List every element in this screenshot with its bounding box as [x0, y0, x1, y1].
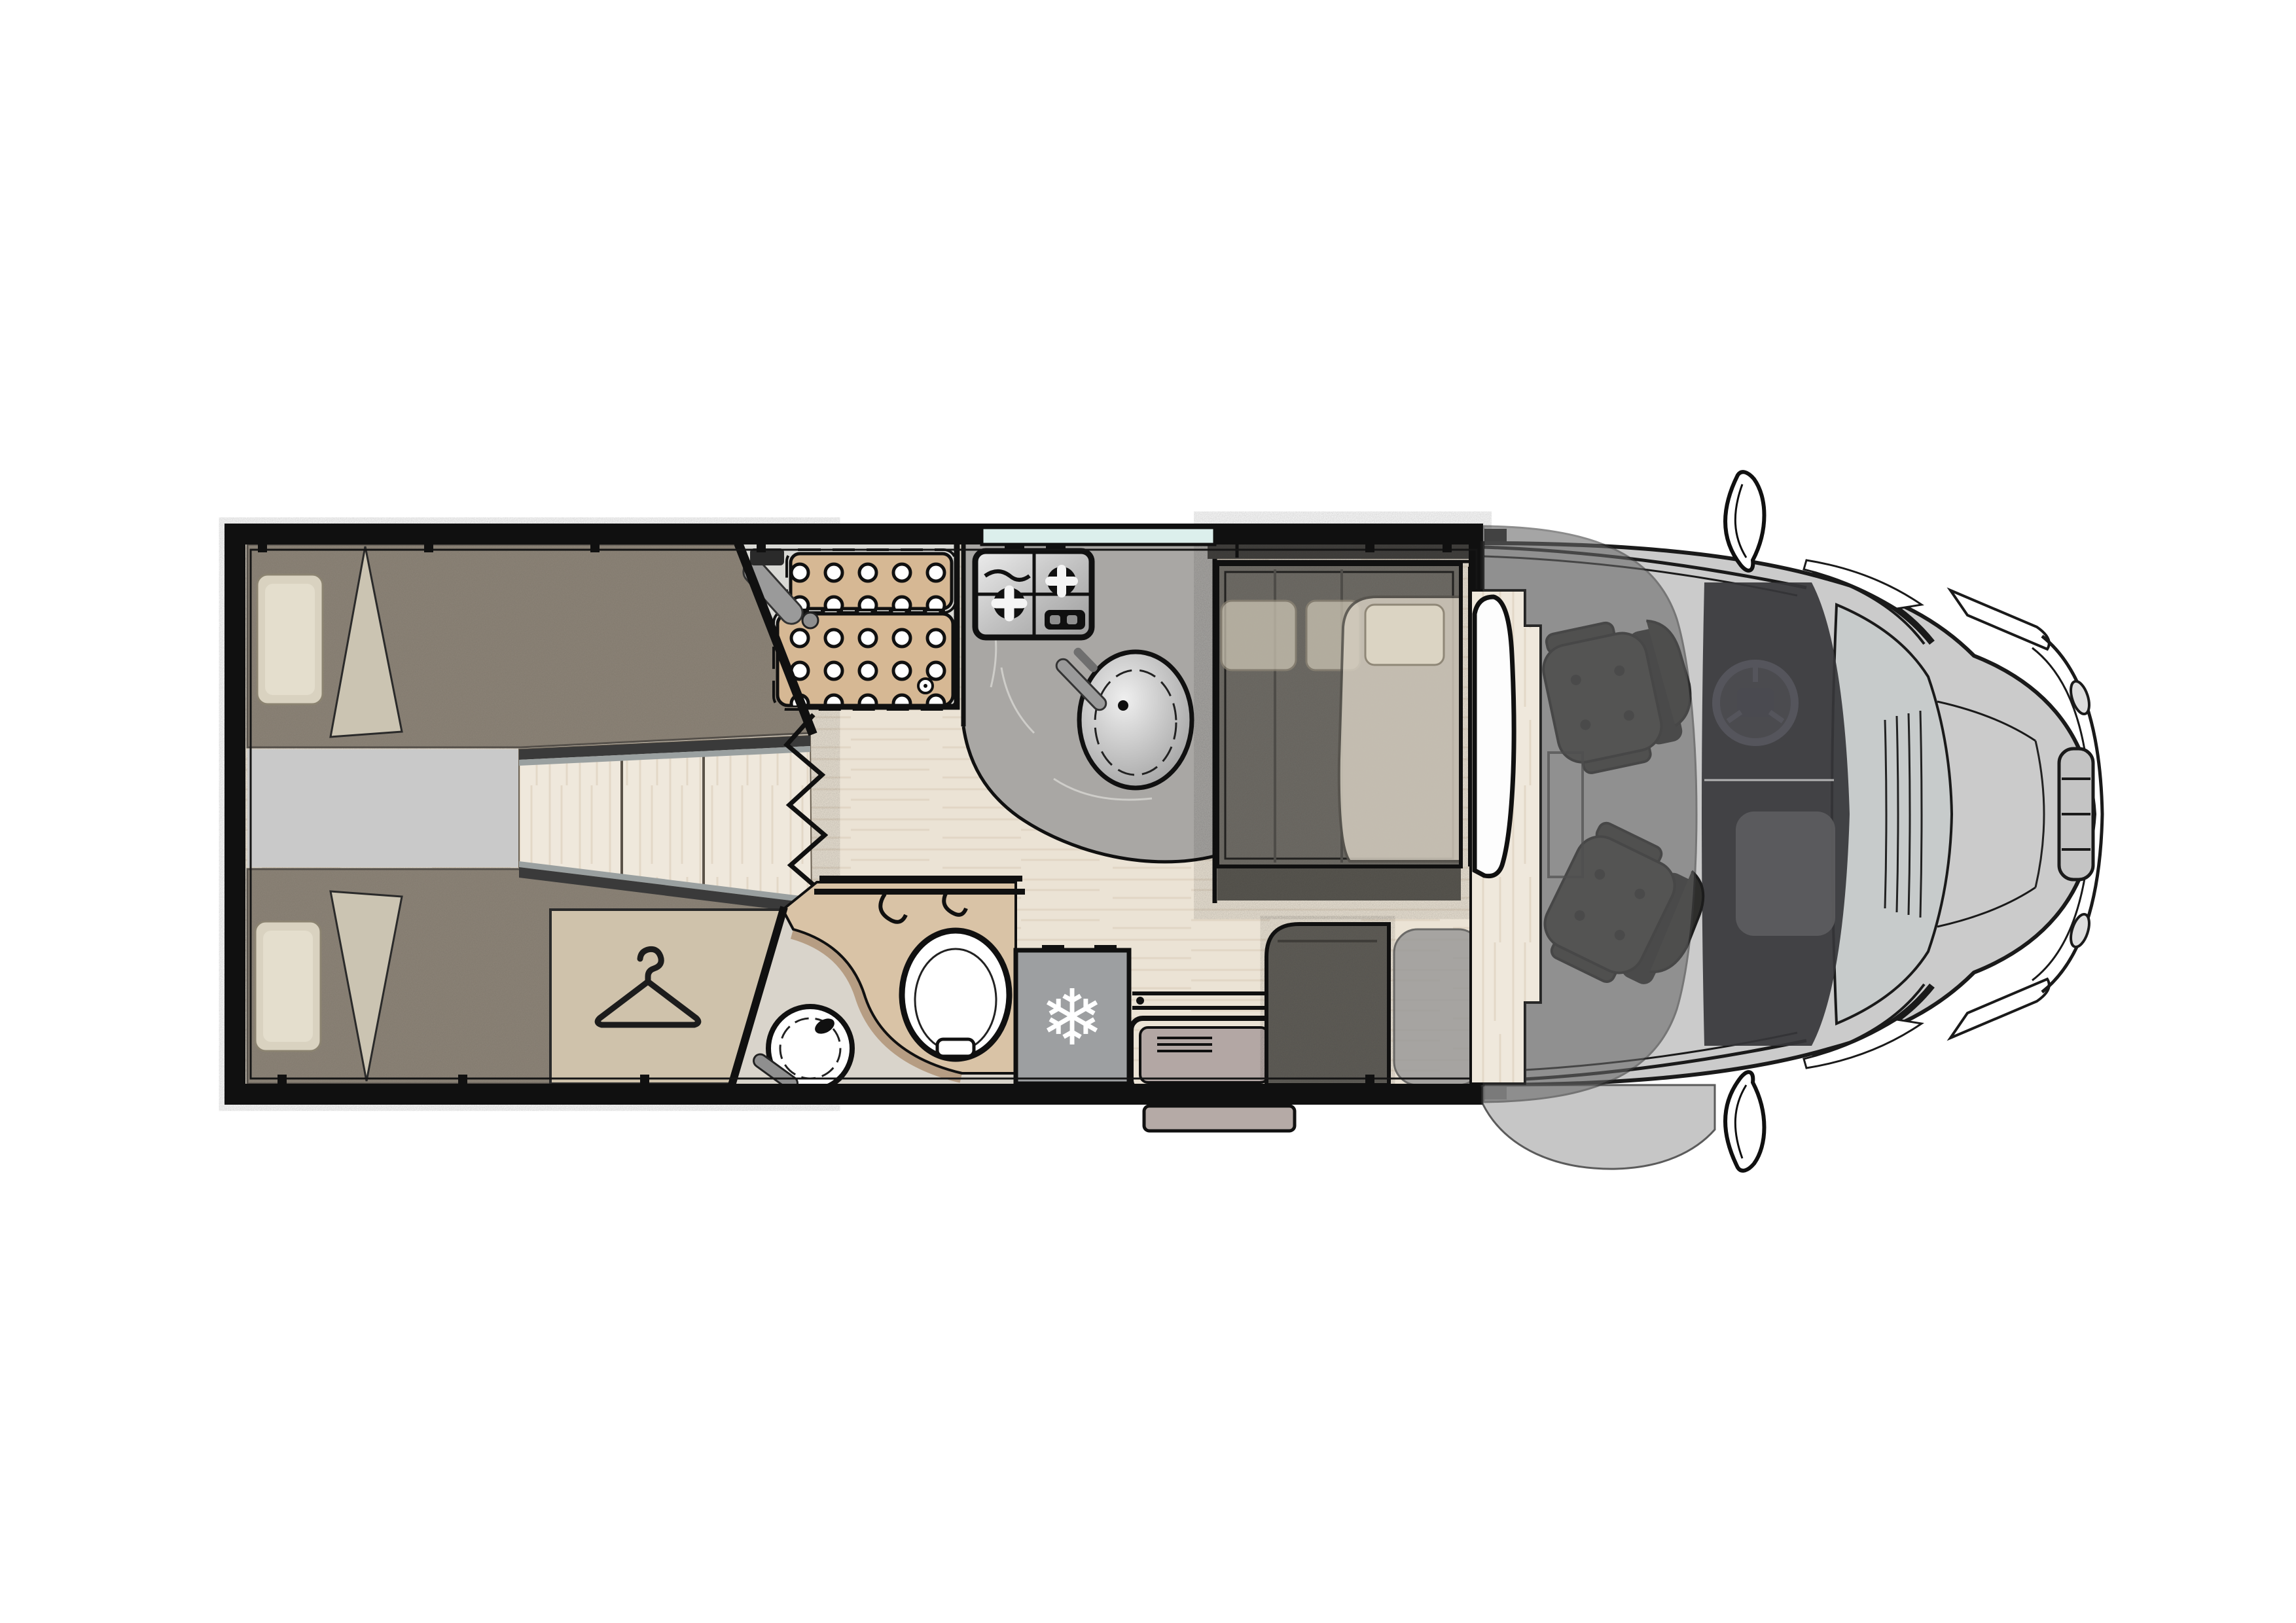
center-platform [247, 749, 519, 867]
dinette-bench-front [1217, 866, 1461, 901]
drop-down-bed-pillow [1365, 605, 1444, 665]
door-panel [1140, 1027, 1268, 1082]
motorhome-floorplan-page: ❄ [0, 0, 2296, 1623]
twin-bed-top-mattress [247, 544, 812, 747]
cab-area [1471, 472, 2102, 1171]
burner-right [1047, 567, 1076, 596]
headlight [1950, 590, 2049, 649]
rear-bedroom [247, 544, 825, 1084]
headrest-left [1221, 601, 1296, 670]
toilet [902, 931, 1009, 1059]
fog-light [2068, 679, 2093, 717]
center-console [1736, 811, 1835, 936]
habitation-area: ❄ [245, 525, 1482, 1131]
kitchen-window [982, 527, 1215, 544]
wing-mirror-bottom [1725, 1072, 1764, 1171]
cab-interior [1702, 582, 1850, 1046]
pedestal-table [1475, 597, 1514, 876]
pillow-top-inner [265, 584, 315, 695]
door-outside-step [1144, 1106, 1295, 1131]
steering-wheel [1716, 664, 1795, 742]
side-bench [1266, 924, 1389, 1085]
wing-mirror-top [1725, 472, 1764, 571]
snowflake-icon: ❄ [1040, 972, 1105, 1063]
pillow-bottom-inner [263, 931, 313, 1042]
floorplan-drawing: ❄ [0, 0, 2296, 1623]
hob-two-burner [975, 546, 1092, 637]
burner-left [994, 588, 1025, 619]
fridge: ❄ [1016, 945, 1129, 1084]
shower-duckboard-top [787, 550, 956, 613]
entry-step-well [1394, 929, 1482, 1085]
